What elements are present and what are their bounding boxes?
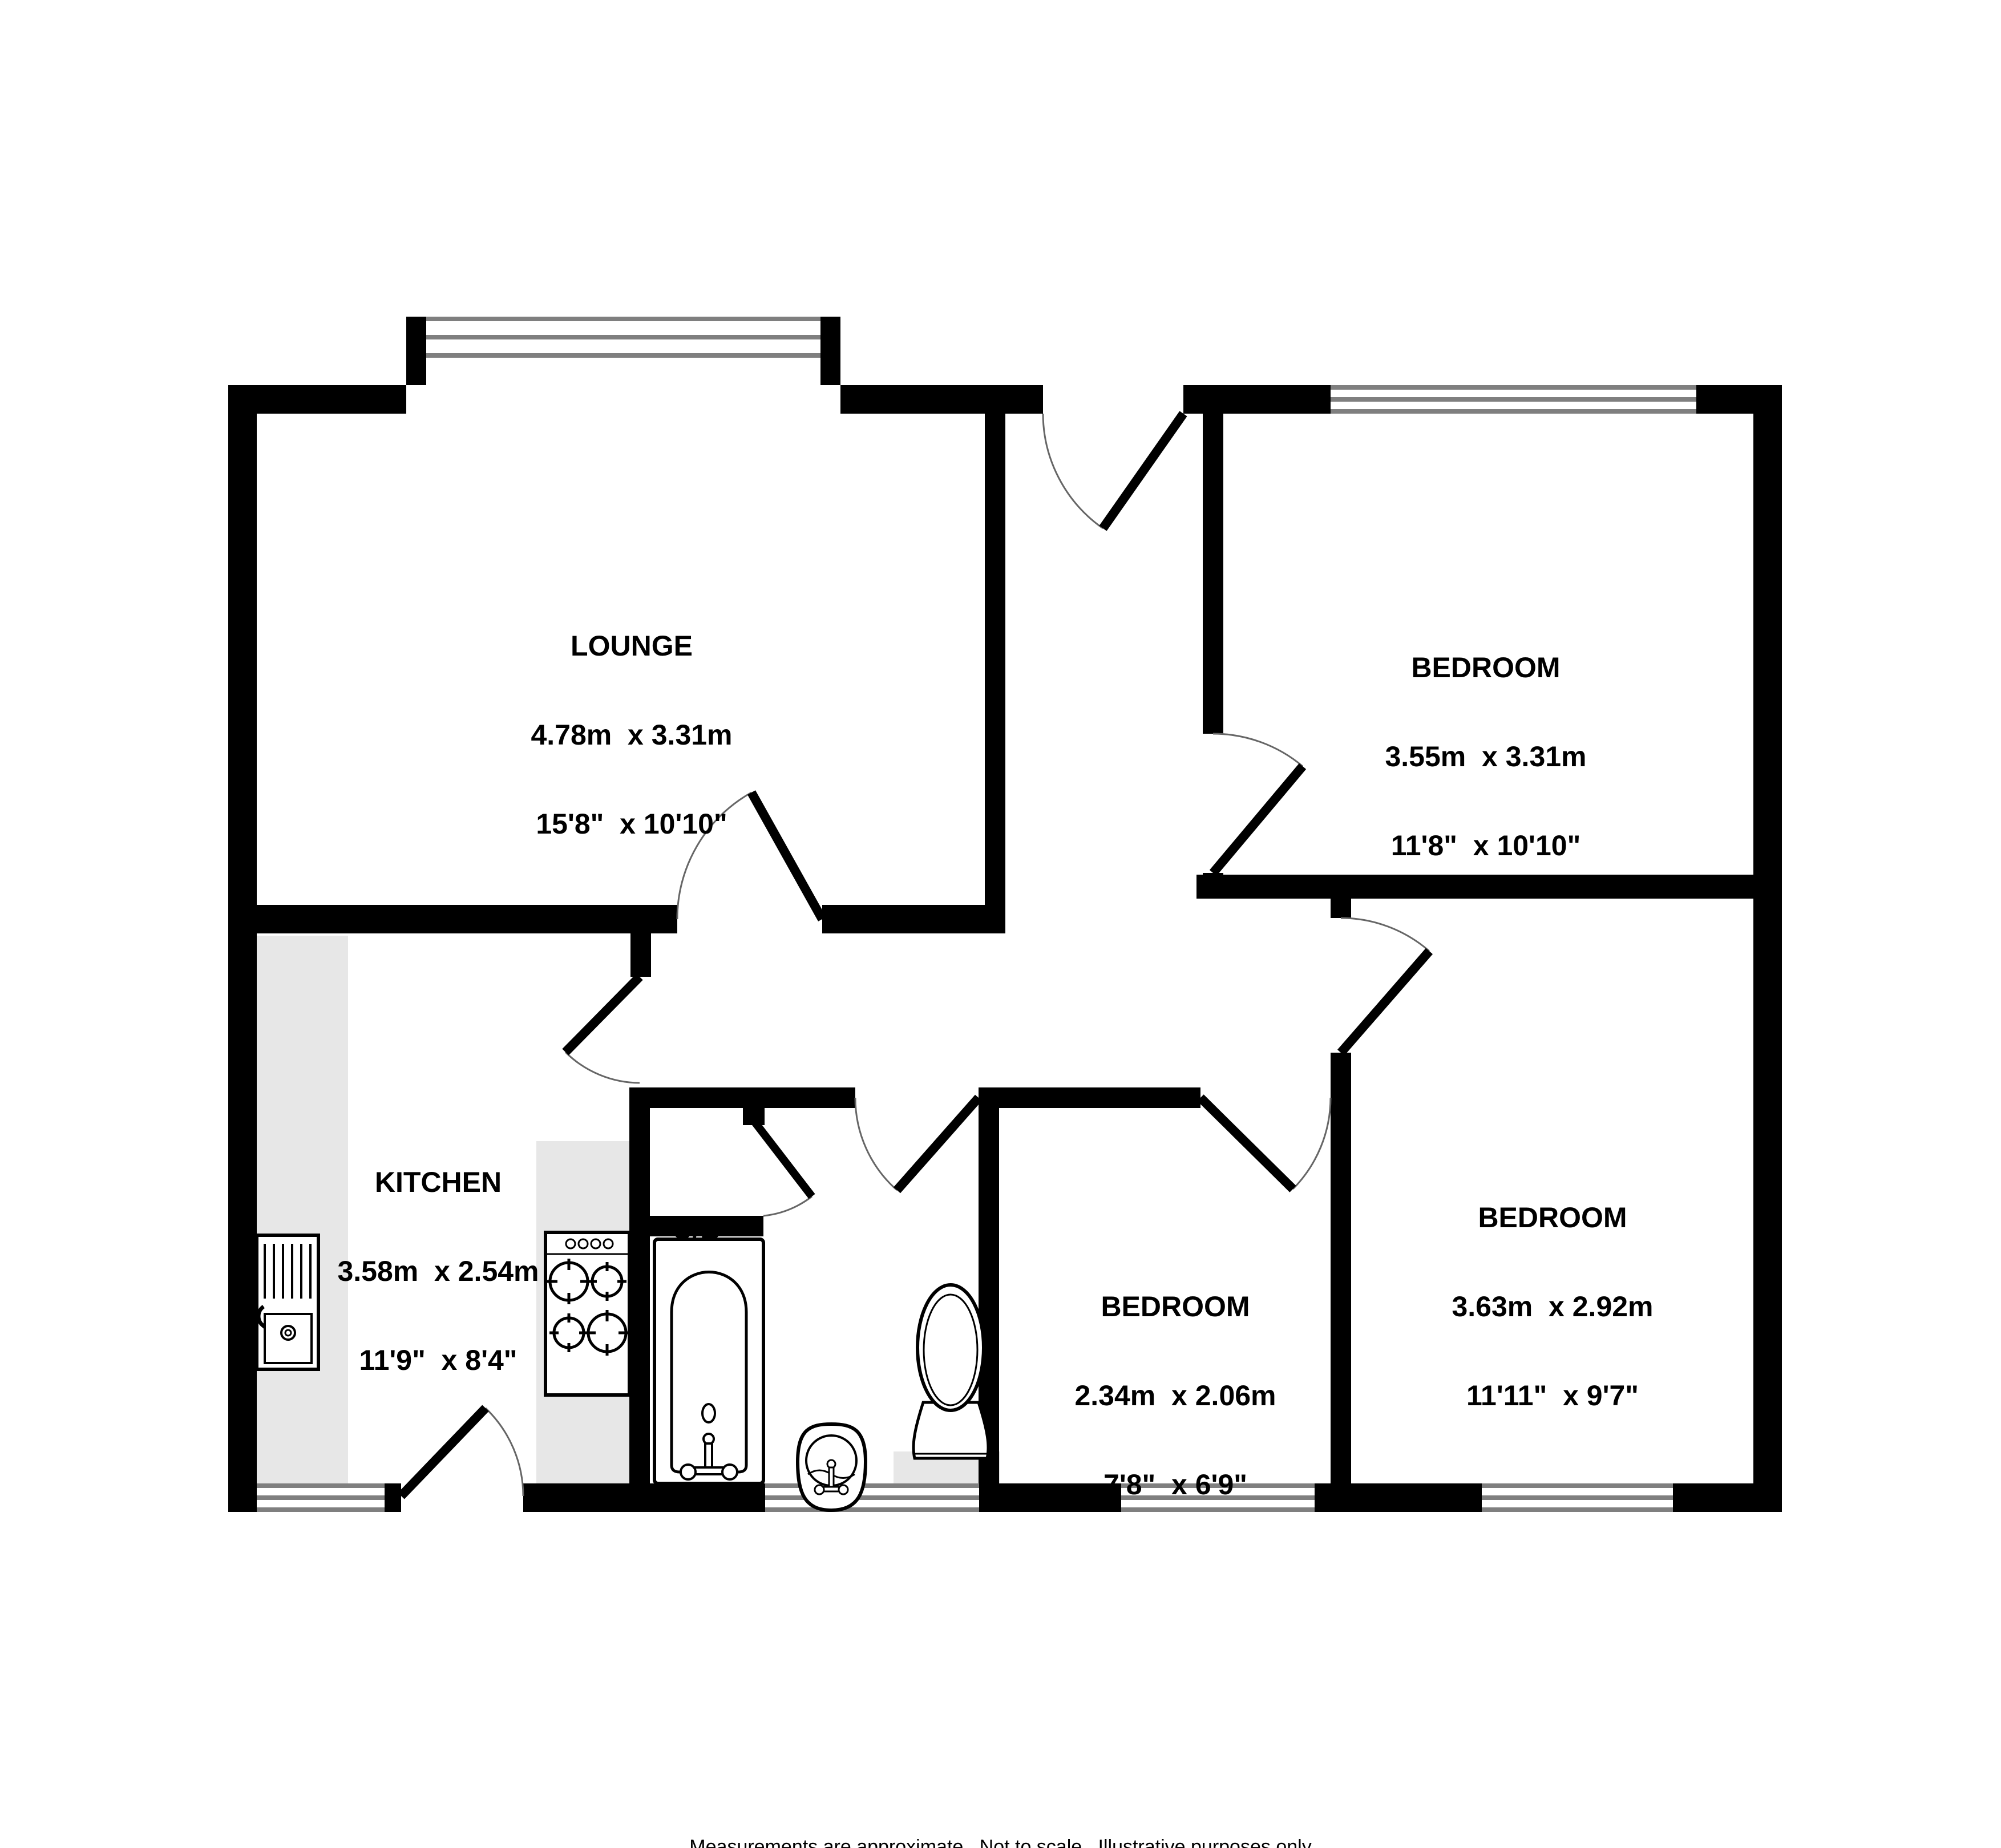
kitchen-door (565, 977, 640, 1083)
room-label-kitchen: KITCHEN 3.58m x 2.54m 11'9" x 8'4" (337, 1108, 539, 1434)
cupboard-door (753, 1120, 812, 1216)
room-label-lounge: LOUNGE 4.78m x 3.31m 15'8" x 10'10" (531, 572, 732, 898)
kitchen-window (257, 1483, 385, 1512)
kitchen-door-leaf (565, 977, 640, 1052)
room-size-metric: 2.34m x 2.06m (1074, 1381, 1276, 1410)
room-label-bedroom-2: BEDROOM 3.63m x 2.92m 11'11" x 9'7" (1452, 1143, 1653, 1470)
disclaimer-line-1: Measurements are approximate. Not to sca… (689, 1833, 1311, 1848)
bathroom-window (765, 1483, 979, 1512)
floorplan-canvas: LOUNGE 4.78m x 3.31m 15'8" x 10'10" BEDR… (0, 0, 2001, 1848)
bedroom-2-window (1482, 1483, 1673, 1512)
cupboard-door-arc (763, 1196, 812, 1216)
toilet-bowl (917, 1285, 984, 1410)
bedroom-1-door-leaf (1213, 766, 1303, 873)
kitchen-door-arc (565, 1052, 640, 1083)
room-size-metric: 4.78m x 3.31m (531, 720, 732, 750)
room-size-imperial: 7'8" x 6'9" (1074, 1470, 1276, 1499)
bedroom-3-door (1200, 1098, 1331, 1189)
room-name: C/B (672, 1214, 721, 1244)
bedroom-1-window (1331, 385, 1696, 414)
lounge-door-leaf (751, 792, 822, 919)
wash-basin (798, 1424, 866, 1510)
entrance-door-leaf (1103, 414, 1183, 528)
bathroom-door (855, 1098, 979, 1190)
room-size-metric: 3.58m x 2.54m (337, 1256, 539, 1286)
room-size-imperial: 15'8" x 10'10" (531, 809, 732, 839)
toilet (913, 1285, 988, 1458)
worktop-left (257, 936, 348, 1483)
bedroom-3-door-leaf (1200, 1098, 1293, 1189)
room-name: LOUNGE (531, 631, 732, 661)
room-name: BEDROOM (1385, 653, 1586, 682)
cupboard-door-leaf (753, 1120, 812, 1196)
room-size-imperial: 11'9" x 8'4" (337, 1345, 539, 1375)
room-name: KITCHEN (337, 1167, 539, 1197)
bedroom-2-door (1341, 918, 1429, 1053)
room-name: BEDROOM (1074, 1292, 1276, 1321)
room-label-bedroom-1: BEDROOM 3.55m x 3.31m 11'8" x 10'10" (1385, 593, 1586, 920)
disclaimer: Measurements are approximate. Not to sca… (689, 1777, 1311, 1848)
lounge-window (426, 317, 820, 358)
bedroom-3-door-arc (1293, 1098, 1331, 1189)
bedroom-2-door-arc (1341, 918, 1429, 951)
cooker-hob (545, 1232, 630, 1395)
room-size-imperial: 11'8" x 10'10" (1385, 831, 1586, 860)
room-size-metric: 3.55m x 3.31m (1385, 742, 1586, 771)
kitchen-sink (257, 1235, 318, 1369)
entrance-door (1043, 414, 1183, 528)
room-name: BEDROOM (1452, 1203, 1653, 1232)
room-size-metric: 3.63m x 2.92m (1452, 1292, 1653, 1321)
room-label-bedroom-3: BEDROOM 2.34m x 2.06m 7'8" x 6'9" (1074, 1232, 1276, 1559)
bathroom-door-arc (855, 1098, 897, 1190)
entrance-door-arc (1043, 414, 1103, 528)
room-label-cupboard: C/B (672, 1155, 721, 1303)
floorplan-drawing (0, 0, 2001, 1848)
bedroom-1-door (1213, 734, 1303, 873)
wall-left (228, 385, 257, 1512)
bathroom-door-leaf (897, 1098, 979, 1190)
room-size-imperial: 11'11" x 9'7" (1452, 1381, 1653, 1410)
bedroom-2-door-leaf (1341, 951, 1429, 1053)
wall-right (1753, 385, 1782, 1512)
bedroom-1-door-arc (1213, 734, 1303, 766)
